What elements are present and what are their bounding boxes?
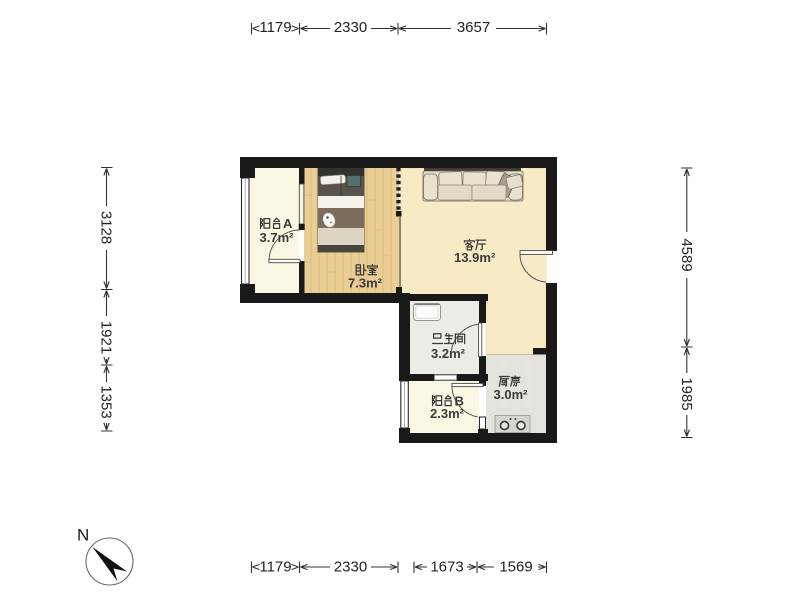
- svg-text:1179: 1179: [259, 19, 291, 36]
- svg-text:3.0m²: 3.0m²: [494, 387, 529, 402]
- svg-text:2330: 2330: [334, 559, 367, 576]
- svg-text:1673: 1673: [430, 559, 463, 576]
- svg-text:7.3m²: 7.3m²: [348, 276, 383, 291]
- svg-text:1179: 1179: [259, 559, 291, 576]
- svg-text:1985: 1985: [678, 377, 695, 410]
- svg-text:13.9m²: 13.9m²: [454, 250, 496, 265]
- svg-text:3.7m²: 3.7m²: [260, 230, 295, 245]
- svg-text:3.2m²: 3.2m²: [431, 346, 466, 361]
- svg-text:A: A: [283, 216, 293, 231]
- svg-text:4589: 4589: [678, 238, 695, 271]
- svg-text:N: N: [77, 526, 89, 545]
- svg-text:2330: 2330: [334, 19, 367, 36]
- svg-text:1921: 1921: [97, 321, 114, 354]
- svg-text:2.3m²: 2.3m²: [430, 406, 465, 421]
- svg-text:3128: 3128: [97, 211, 114, 244]
- svg-text:1569: 1569: [499, 559, 532, 576]
- svg-text:1353: 1353: [97, 385, 114, 418]
- svg-text:3657: 3657: [457, 19, 490, 36]
